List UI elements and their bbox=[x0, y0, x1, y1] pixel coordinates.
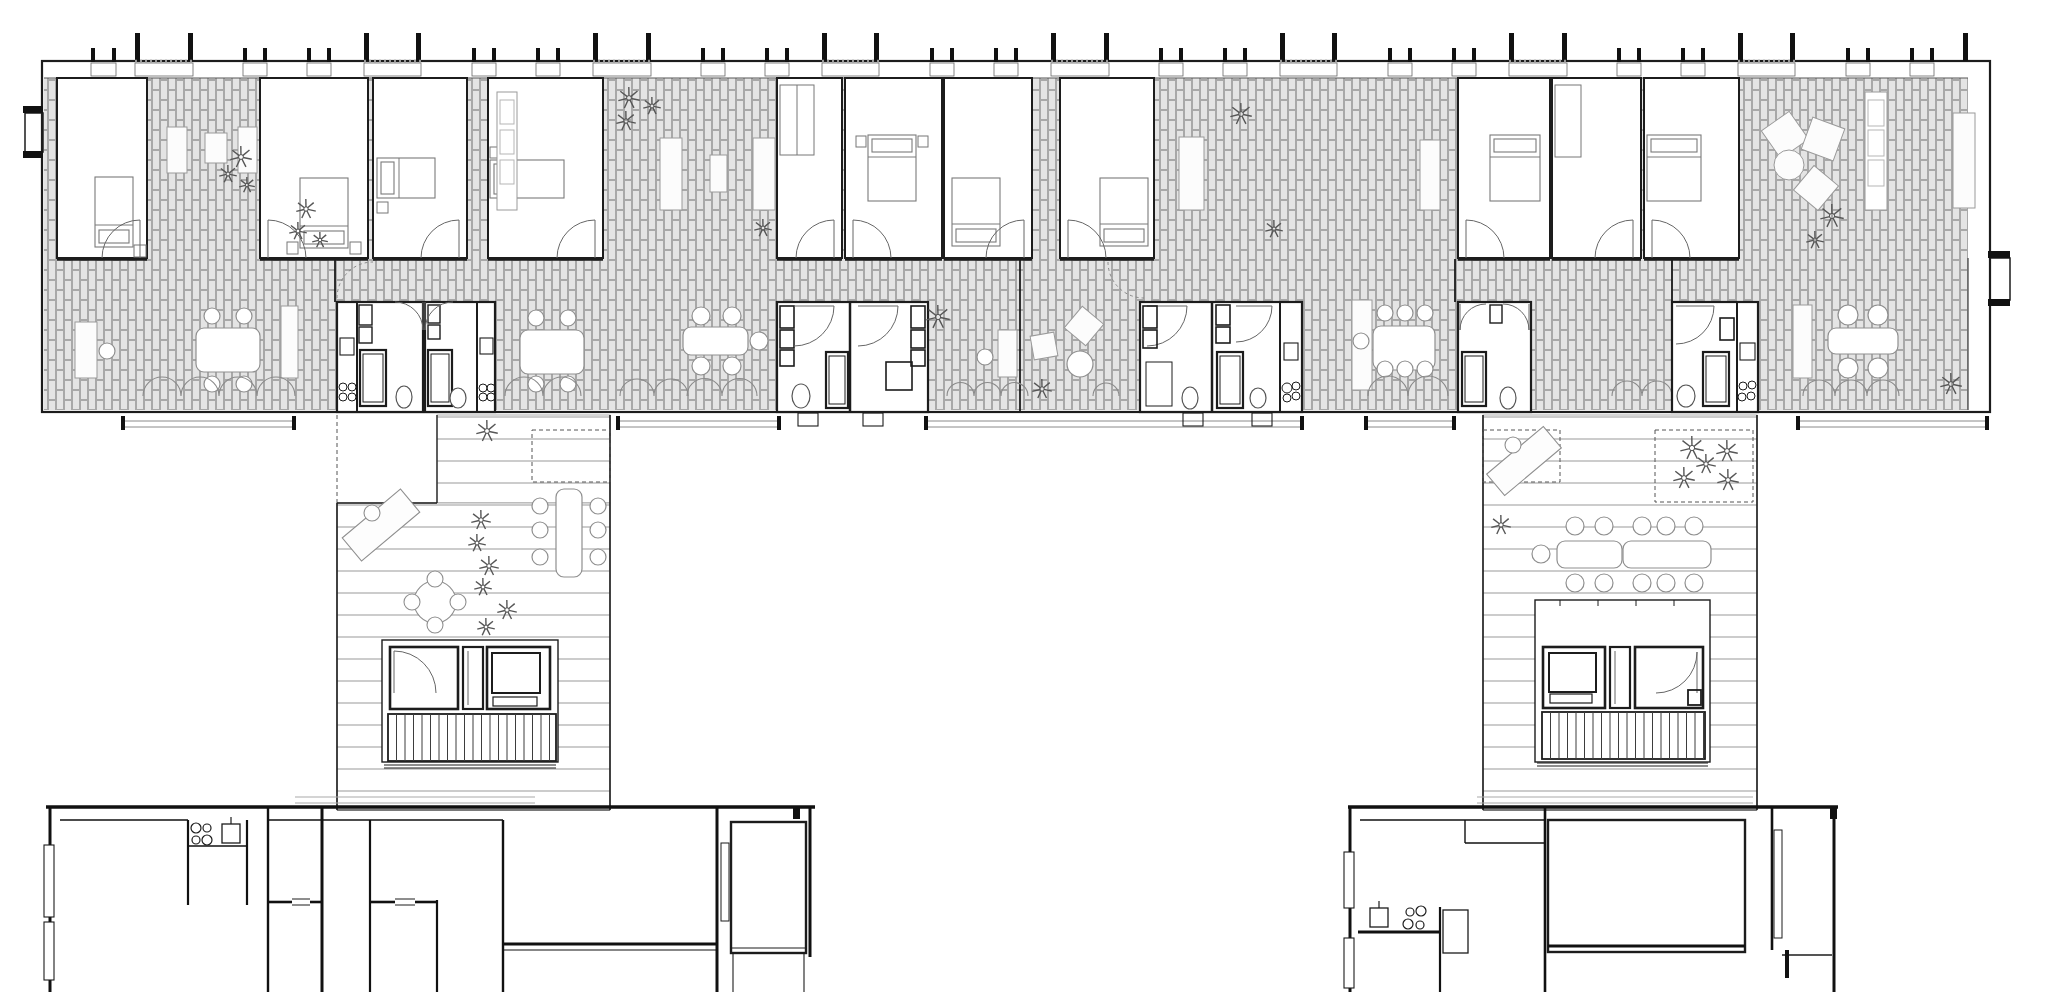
structure-tick bbox=[1472, 48, 1476, 62]
chair bbox=[590, 498, 606, 514]
structure-tick bbox=[1104, 33, 1109, 61]
fixture-circle bbox=[192, 836, 200, 844]
chair bbox=[532, 549, 548, 565]
structure-tick bbox=[1051, 33, 1056, 61]
plan-rect bbox=[1443, 910, 1468, 953]
dining-table bbox=[683, 327, 748, 355]
bed bbox=[1647, 135, 1701, 201]
structure-tick bbox=[112, 48, 116, 62]
structure-tick bbox=[23, 151, 43, 158]
structure-tick bbox=[721, 48, 725, 62]
bed bbox=[95, 177, 133, 247]
toilet-fixture bbox=[1500, 387, 1516, 409]
plan-rect bbox=[753, 138, 775, 210]
structure-tick bbox=[1701, 48, 1705, 62]
plan-rect bbox=[798, 413, 818, 426]
structure-tick bbox=[1179, 48, 1183, 62]
chair bbox=[1566, 517, 1584, 535]
structure-tick bbox=[556, 48, 560, 62]
chair bbox=[1397, 305, 1413, 321]
chair bbox=[528, 310, 544, 326]
plan-rect bbox=[243, 63, 267, 76]
fixture-circle bbox=[404, 594, 420, 610]
chair bbox=[1657, 517, 1675, 535]
structure-tick bbox=[1988, 299, 2010, 306]
plan-rect bbox=[1420, 140, 1440, 210]
bathroom-core bbox=[1458, 302, 1531, 412]
plan-rect bbox=[463, 647, 483, 709]
plan-rect bbox=[364, 63, 421, 76]
bed bbox=[1100, 178, 1148, 246]
fixture-circle bbox=[1774, 150, 1804, 180]
chair bbox=[1532, 545, 1550, 563]
plan-rect bbox=[1610, 647, 1630, 708]
structure-tick bbox=[1866, 48, 1870, 62]
plan-rect bbox=[44, 845, 54, 917]
plan-rect bbox=[1910, 63, 1934, 76]
wood-deck bbox=[437, 415, 610, 503]
structure-tick bbox=[327, 48, 331, 62]
chair bbox=[692, 357, 710, 375]
structure-tick bbox=[1364, 416, 1368, 430]
structure-tick bbox=[1985, 416, 1989, 430]
structure-tick bbox=[777, 416, 781, 430]
structure-tick bbox=[822, 33, 827, 61]
fixture-circle bbox=[364, 505, 380, 521]
bar-building bbox=[23, 33, 2010, 430]
structure-tick bbox=[1617, 48, 1621, 62]
chair bbox=[532, 522, 548, 538]
plan-rect bbox=[1159, 63, 1183, 76]
toilet-fixture bbox=[792, 384, 810, 408]
structure-tick bbox=[492, 48, 496, 62]
structure-tick bbox=[1280, 33, 1285, 61]
toilet-fixture bbox=[396, 386, 412, 408]
floor-plan-drawing bbox=[0, 0, 2052, 992]
plan-rect bbox=[660, 138, 682, 210]
bed-pillow bbox=[1651, 139, 1697, 152]
plan-rect bbox=[135, 63, 193, 76]
plan-rect bbox=[930, 63, 954, 76]
left-terrace-wing bbox=[295, 415, 610, 810]
dining-table bbox=[1557, 541, 1622, 568]
plan-rect bbox=[1681, 63, 1705, 76]
chair bbox=[1417, 361, 1433, 377]
bed bbox=[377, 158, 435, 198]
chair bbox=[1417, 305, 1433, 321]
toilet-fixture bbox=[1677, 385, 1695, 407]
plan-rect bbox=[25, 113, 43, 152]
bed bbox=[1490, 135, 1540, 201]
chair bbox=[1838, 305, 1858, 325]
plan-rect bbox=[281, 306, 298, 378]
chair bbox=[1657, 574, 1675, 592]
plan-rect bbox=[593, 63, 651, 76]
chair bbox=[750, 332, 768, 350]
structure-tick bbox=[765, 48, 769, 62]
bed-pillow bbox=[1104, 229, 1144, 242]
fixture-circle bbox=[1067, 351, 1093, 377]
plan-rect bbox=[1223, 63, 1247, 76]
chair bbox=[1595, 574, 1613, 592]
structure-tick bbox=[1830, 807, 1837, 819]
plan-rect bbox=[1388, 63, 1412, 76]
structure-tick bbox=[1408, 48, 1412, 62]
structure-tick bbox=[1388, 48, 1392, 62]
fixture-circle bbox=[427, 571, 443, 587]
structure-tick bbox=[1796, 416, 1800, 430]
plan-rect bbox=[75, 322, 97, 378]
structure-tick bbox=[994, 48, 998, 62]
fixture-circle bbox=[203, 824, 211, 832]
fixture-circle bbox=[1505, 437, 1521, 453]
chair bbox=[1633, 517, 1651, 535]
structure-tick bbox=[292, 416, 296, 430]
structure-tick bbox=[1637, 48, 1641, 62]
structure-tick bbox=[188, 33, 193, 61]
fixture-circle bbox=[1416, 906, 1426, 916]
structure-tick bbox=[1223, 48, 1227, 62]
bedroom bbox=[777, 78, 842, 258]
chair bbox=[723, 307, 741, 325]
plan-rect bbox=[1252, 413, 1272, 426]
structure-tick bbox=[930, 48, 934, 62]
plan-rect bbox=[1738, 63, 1795, 76]
chair bbox=[1868, 358, 1888, 378]
plan-rect bbox=[536, 63, 560, 76]
chair bbox=[692, 307, 710, 325]
plan-rect bbox=[1030, 332, 1058, 360]
plan-rect bbox=[1953, 113, 1975, 208]
right-terrace-wing bbox=[1477, 415, 1757, 810]
fixture-circle bbox=[1406, 908, 1414, 916]
bathroom-core bbox=[1140, 302, 1302, 412]
lower-left-apartment bbox=[44, 807, 815, 992]
bed-pillow bbox=[1494, 139, 1536, 152]
plan-rect bbox=[1509, 63, 1567, 76]
bed-pillow bbox=[381, 162, 394, 194]
chair bbox=[1685, 517, 1703, 535]
structure-tick bbox=[1846, 48, 1850, 62]
chair bbox=[204, 308, 220, 324]
plan-rect bbox=[701, 63, 725, 76]
structure-tick bbox=[307, 48, 311, 62]
plan-rect bbox=[1344, 938, 1354, 988]
structure-tick bbox=[701, 48, 705, 62]
plan-rect bbox=[994, 63, 1018, 76]
chair bbox=[560, 310, 576, 326]
fixture-circle bbox=[1403, 919, 1413, 929]
plan-rect bbox=[307, 63, 331, 76]
chair bbox=[1595, 517, 1613, 535]
chair bbox=[532, 498, 548, 514]
structure-tick bbox=[1988, 251, 2010, 258]
chair bbox=[236, 308, 252, 324]
fixture-circle bbox=[450, 594, 466, 610]
structure-tick bbox=[1014, 48, 1018, 62]
plan-rect bbox=[1793, 305, 1812, 378]
plan-rect bbox=[91, 63, 116, 76]
chair bbox=[1633, 574, 1651, 592]
chair bbox=[1685, 574, 1703, 592]
structure-tick bbox=[1738, 33, 1743, 61]
chair bbox=[1397, 361, 1413, 377]
structure-tick bbox=[793, 807, 800, 819]
fixture-circle bbox=[99, 343, 115, 359]
plan-rect bbox=[1990, 258, 2010, 300]
dining-table bbox=[196, 328, 260, 372]
plan-rect bbox=[222, 824, 240, 843]
plan-rect bbox=[731, 822, 806, 953]
fixture-circle bbox=[191, 823, 201, 833]
plan-rect bbox=[998, 330, 1017, 377]
toilet-fixture bbox=[450, 388, 466, 408]
structure-tick bbox=[135, 33, 140, 61]
structure-tick bbox=[616, 416, 620, 430]
plan-rect bbox=[390, 647, 458, 709]
plan-rect bbox=[1280, 63, 1337, 76]
dining-table bbox=[1623, 541, 1711, 568]
structure-tick bbox=[536, 48, 540, 62]
structure-tick bbox=[364, 33, 369, 61]
structure-tick bbox=[1963, 33, 1968, 61]
fixture-circle bbox=[977, 349, 993, 365]
plan-rect bbox=[205, 133, 227, 163]
plan-rect bbox=[822, 63, 879, 76]
plan-rect bbox=[863, 413, 883, 426]
bedroom bbox=[1552, 78, 1641, 258]
structure-tick bbox=[1930, 48, 1934, 62]
structure-tick bbox=[1452, 48, 1456, 62]
plan-rect bbox=[472, 63, 496, 76]
toilet-fixture bbox=[1250, 388, 1266, 408]
floor-plan-canvas bbox=[0, 0, 2052, 992]
structure-tick bbox=[1562, 33, 1567, 61]
chair bbox=[723, 357, 741, 375]
plan-rect bbox=[1542, 712, 1705, 759]
plan-rect bbox=[44, 922, 54, 980]
chair bbox=[1377, 305, 1393, 321]
structure-tick bbox=[785, 48, 789, 62]
structure-tick bbox=[416, 33, 421, 61]
plan-rect bbox=[1452, 63, 1476, 76]
structure-tick bbox=[1300, 416, 1304, 430]
structure-tick bbox=[263, 48, 267, 62]
structure-tick bbox=[472, 48, 476, 62]
chair bbox=[1377, 361, 1393, 377]
chair bbox=[1838, 358, 1858, 378]
structure-tick bbox=[121, 416, 125, 430]
structure-tick bbox=[91, 48, 95, 62]
plan-rect bbox=[1774, 830, 1782, 938]
plan-rect bbox=[1179, 137, 1204, 210]
structure-tick bbox=[1910, 48, 1914, 62]
bed-pillow bbox=[872, 139, 912, 152]
structure-tick bbox=[1243, 48, 1247, 62]
plan-rect bbox=[1051, 63, 1109, 76]
plan-rect bbox=[1183, 413, 1203, 426]
plan-rect bbox=[1370, 908, 1388, 927]
bed-pillow bbox=[99, 230, 129, 243]
fixture-circle bbox=[202, 835, 212, 845]
plan-rect bbox=[167, 127, 187, 173]
plan-rect bbox=[710, 155, 727, 192]
fixture-circle bbox=[1416, 921, 1424, 929]
plan-rect bbox=[765, 63, 789, 76]
chair bbox=[1353, 333, 1369, 349]
plan-rect bbox=[721, 843, 729, 921]
lower-right-apartment bbox=[1344, 807, 1838, 992]
toilet-fixture bbox=[1182, 387, 1198, 409]
structure-tick bbox=[23, 106, 43, 113]
plan-rect bbox=[1846, 63, 1870, 76]
dining-table bbox=[520, 330, 584, 374]
structure-tick bbox=[924, 416, 928, 430]
chair bbox=[590, 522, 606, 538]
structure-tick bbox=[593, 33, 598, 61]
structure-tick bbox=[1332, 33, 1337, 61]
plan-rect bbox=[1617, 63, 1641, 76]
structure-tick bbox=[1159, 48, 1163, 62]
plan-rect bbox=[1635, 647, 1703, 708]
structure-tick bbox=[874, 33, 879, 61]
structure-tick bbox=[646, 33, 651, 61]
bed bbox=[868, 135, 916, 201]
structure-tick bbox=[1681, 48, 1685, 62]
structure-tick bbox=[1790, 33, 1795, 61]
structure-tick bbox=[1509, 33, 1514, 61]
chair bbox=[1868, 305, 1888, 325]
dining-table bbox=[1828, 328, 1898, 354]
plan-rect bbox=[1548, 820, 1745, 952]
fixture-circle bbox=[427, 617, 443, 633]
chair bbox=[590, 549, 606, 565]
plan-rect bbox=[1344, 852, 1354, 908]
structure-tick bbox=[243, 48, 247, 62]
dining-table bbox=[556, 489, 582, 577]
structure-tick bbox=[1452, 416, 1456, 430]
structure-tick bbox=[950, 48, 954, 62]
chair bbox=[1566, 574, 1584, 592]
